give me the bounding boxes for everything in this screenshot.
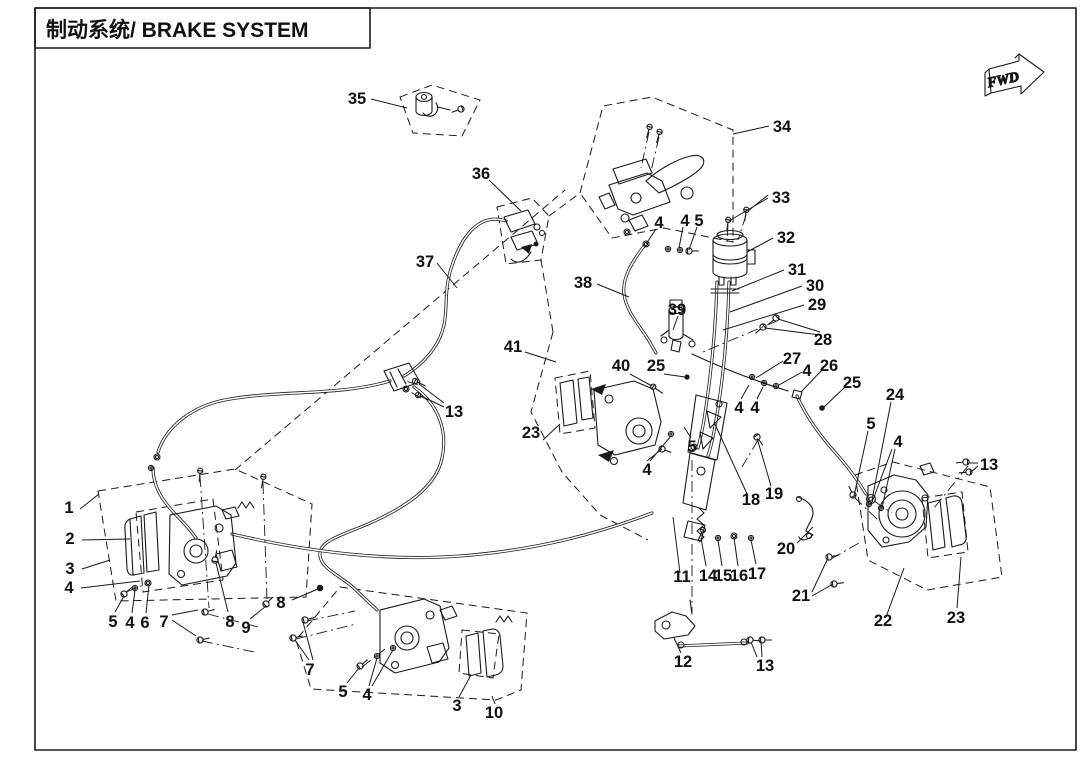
part-label-23: 23 — [947, 609, 965, 627]
part-label-39: 39 — [668, 301, 686, 319]
title-block: 制动系统/ BRAKE SYSTEM — [35, 8, 370, 48]
brake-switch-assembly-drawing — [504, 210, 545, 262]
bushing-part35-drawing — [416, 93, 450, 117]
part-label-27: 27 — [783, 350, 801, 368]
brake-system-diagram: 制动系统/ BRAKE SYSTEM FWD — [0, 0, 1090, 760]
fluid-reservoir-drawing — [713, 231, 755, 286]
part-label-21: 21 — [792, 587, 810, 605]
front-left-caliper-drawing — [125, 502, 254, 585]
part-label-4: 4 — [750, 399, 760, 417]
part-label-3: 3 — [65, 560, 74, 578]
page-title: 制动系统/ BRAKE SYSTEM — [46, 18, 309, 42]
part-label-41: 41 — [504, 338, 522, 356]
part-label-13: 13 — [756, 657, 774, 675]
part-label-22: 22 — [874, 612, 892, 630]
part-label-31: 31 — [788, 261, 806, 279]
fwd-direction-indicator: FWD — [985, 54, 1044, 96]
part-label-4: 4 — [125, 614, 135, 632]
part-label-7: 7 — [159, 613, 168, 631]
assembly-boundaries — [98, 85, 1002, 700]
part-label-4: 4 — [362, 686, 372, 704]
part-label-8: 8 — [225, 613, 234, 631]
part-label-1: 1 — [64, 499, 73, 517]
part-label-36: 36 — [472, 165, 490, 183]
part-label-5: 5 — [338, 683, 347, 701]
part-label-20: 20 — [777, 540, 795, 558]
fwd-label: FWD — [985, 70, 1020, 92]
part-label-4: 4 — [680, 212, 690, 230]
part-label-17: 17 — [748, 565, 766, 583]
part-label-8: 8 — [276, 594, 285, 612]
part-label-4: 4 — [802, 362, 812, 380]
hose-guide-bracket-drawing — [797, 497, 814, 540]
part-label-29: 29 — [808, 296, 826, 314]
lower-caliper-drawing — [380, 599, 512, 677]
part-label-24: 24 — [886, 386, 905, 404]
part-label-35: 35 — [348, 90, 366, 108]
part-label-4: 4 — [642, 461, 652, 479]
part-label-6: 6 — [140, 614, 149, 632]
part-label-32: 32 — [777, 229, 795, 247]
part-label-28: 28 — [814, 331, 832, 349]
part-label-9: 9 — [241, 619, 250, 637]
part-label-5: 5 — [694, 212, 703, 230]
part-label-4: 4 — [734, 399, 744, 417]
part-label-3: 3 — [452, 697, 461, 715]
part-label-26: 26 — [820, 357, 838, 375]
part-label-12: 12 — [674, 653, 692, 671]
part-label-30: 30 — [806, 277, 824, 295]
part-label-34: 34 — [773, 118, 792, 136]
part-label-7: 7 — [305, 661, 314, 679]
part-label-18: 18 — [742, 491, 760, 509]
part-label-19: 19 — [765, 485, 783, 503]
part-label-37: 37 — [416, 253, 434, 271]
part-label-4: 4 — [654, 214, 664, 232]
part-label-2: 2 — [65, 530, 74, 548]
part-label-13: 13 — [980, 456, 998, 474]
part-label-23: 23 — [522, 424, 540, 442]
part-label-4: 4 — [64, 579, 74, 597]
part-label-25: 25 — [647, 357, 665, 375]
part-label-5: 5 — [866, 415, 875, 433]
part-label-33: 33 — [772, 189, 790, 207]
part-label-16: 16 — [730, 567, 748, 585]
part-label-25: 25 — [843, 374, 861, 392]
part-label-38: 38 — [574, 274, 592, 292]
part-label-5: 5 — [108, 613, 117, 631]
part-label-40: 40 — [612, 357, 630, 375]
brake-system-parts-page: 制动系统/ BRAKE SYSTEM FWD — [0, 0, 1090, 760]
part-label-4: 4 — [893, 433, 903, 451]
brake-pedal-linkage-drawing — [655, 600, 747, 648]
part-label-10: 10 — [485, 704, 503, 722]
part-label-5: 5 — [687, 438, 696, 456]
part-label-13: 13 — [445, 403, 463, 421]
part-label-11: 11 — [673, 568, 690, 586]
centerlines — [126, 132, 968, 667]
